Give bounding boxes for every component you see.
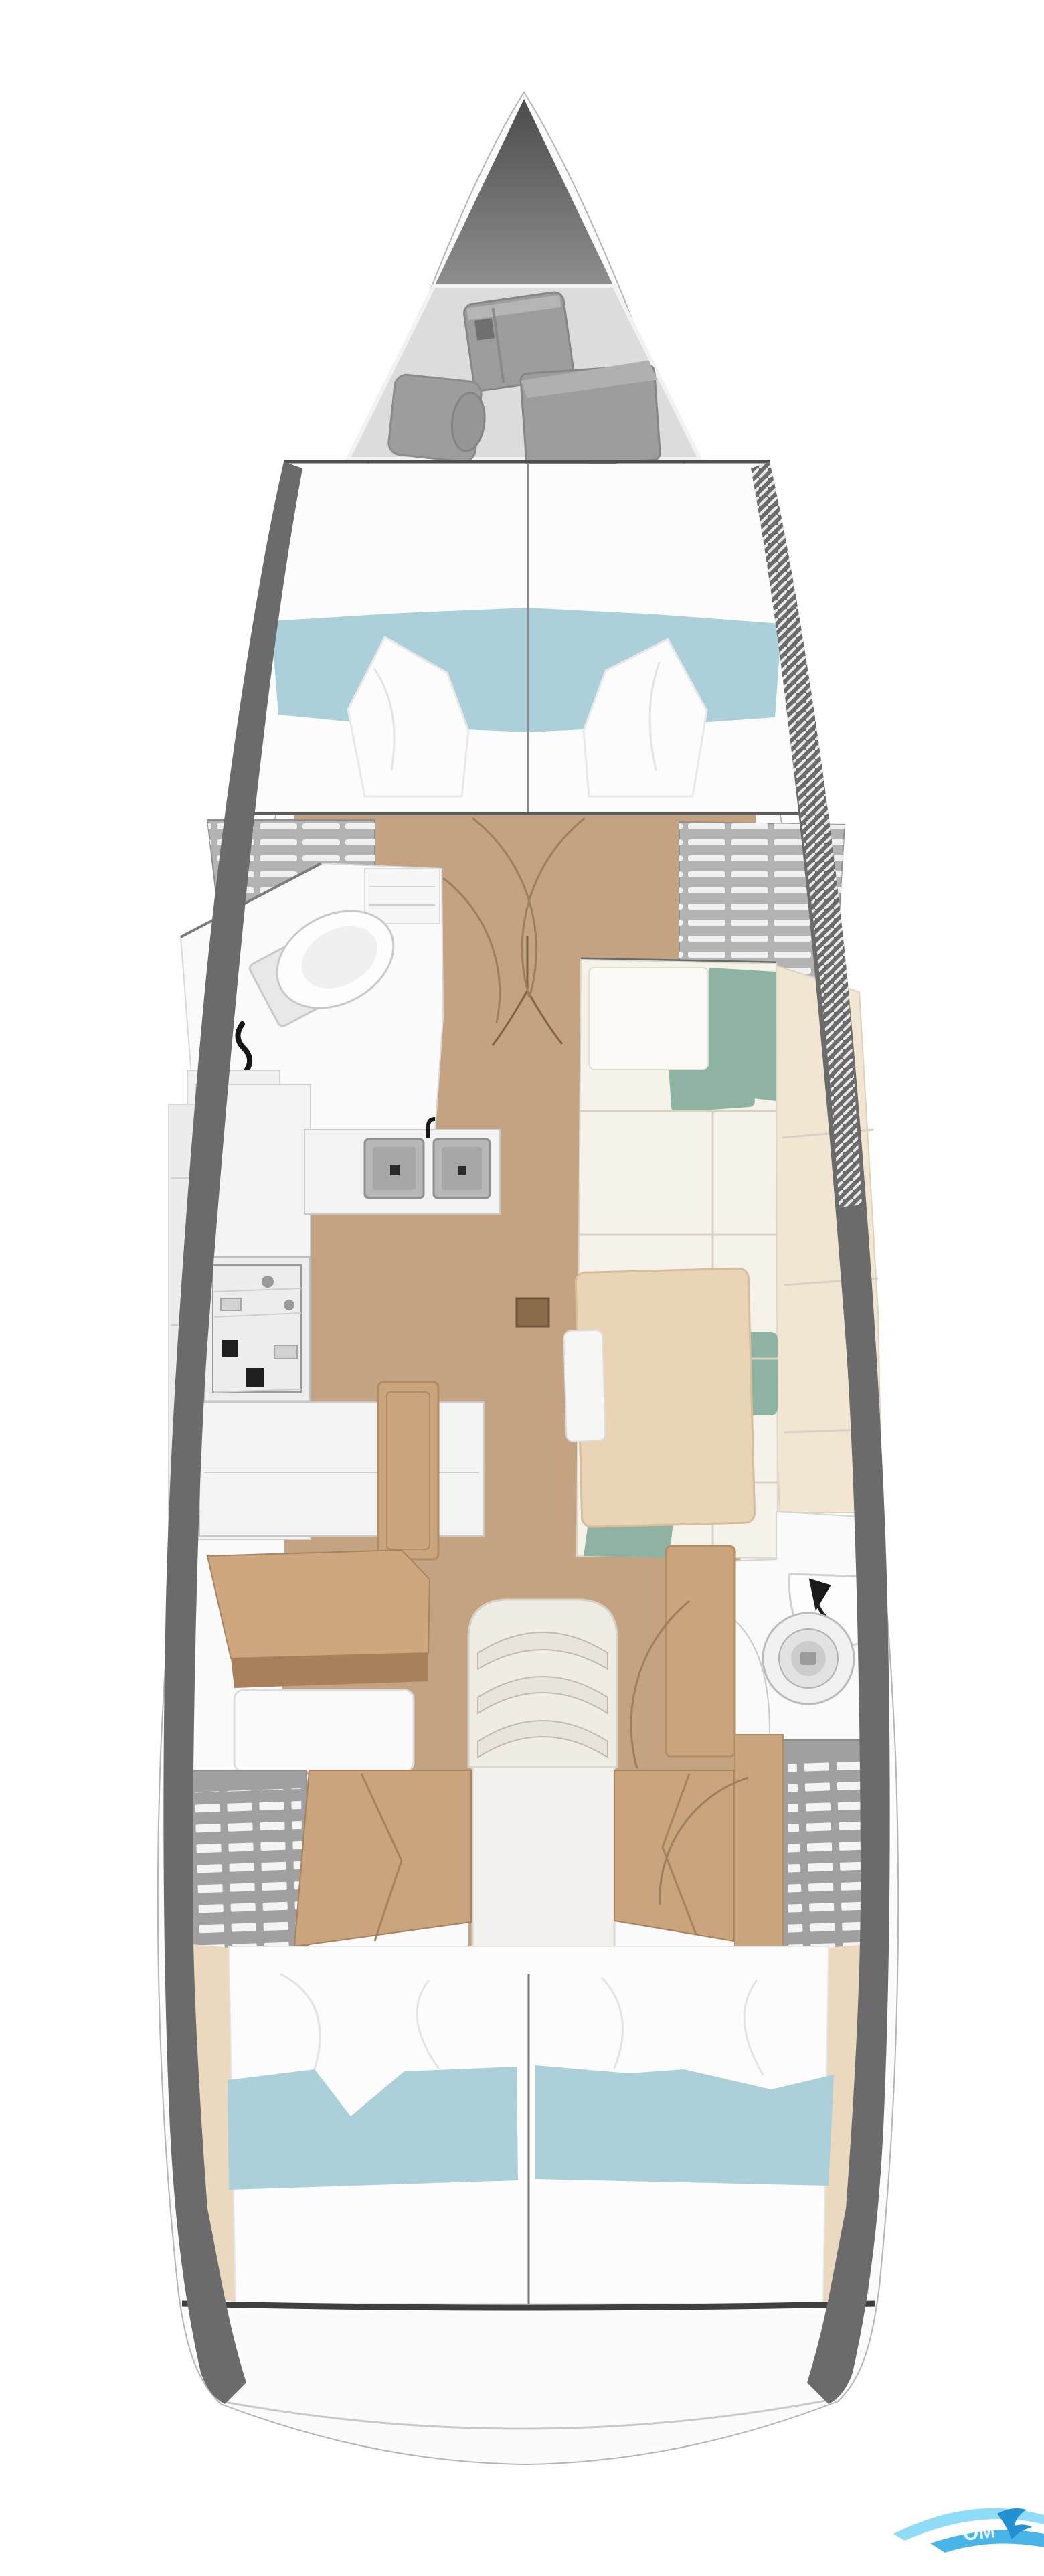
- head-shelf: [365, 869, 440, 924]
- nav-desk-top: [207, 1550, 430, 1658]
- dinette-cushion: [589, 968, 708, 1069]
- bow-section: [348, 99, 700, 469]
- companionway: [468, 1600, 617, 1974]
- stair-platform: [472, 1767, 614, 1974]
- yacht-floorplan-diagram: OM: [0, 0, 1044, 2576]
- nav-seat: [234, 1690, 414, 1772]
- bow-tip: [434, 99, 614, 288]
- forward-cabin: [242, 462, 811, 814]
- aft-head-cabinet: [666, 1546, 735, 1757]
- stove: [204, 1257, 310, 1401]
- watermark-logo: OM: [893, 2508, 1044, 2553]
- floor-hatch: [517, 1298, 549, 1326]
- yacht-floorplan-page: OM: [0, 0, 1044, 2576]
- salon-table: [562, 1268, 755, 1527]
- aft-toilet: [763, 1613, 854, 1704]
- logo-text: OM: [962, 2520, 996, 2545]
- galley-lower-counter: [199, 1402, 484, 1536]
- aft-cabins: [190, 1944, 869, 2304]
